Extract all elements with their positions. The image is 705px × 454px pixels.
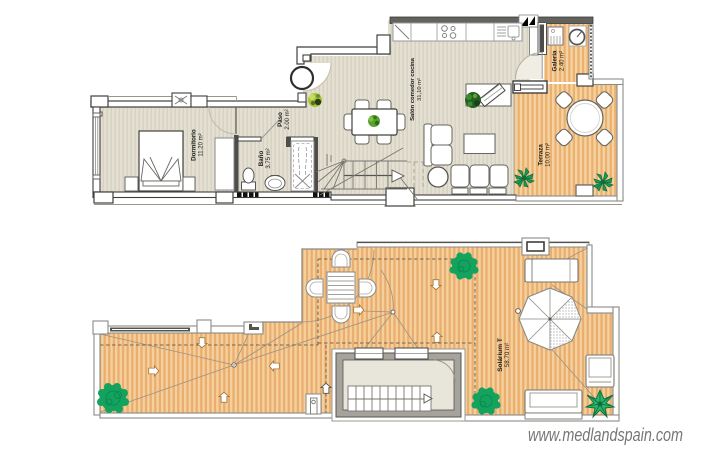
svg-text:Dormitorio: Dormitorio <box>191 129 198 161</box>
svg-text:10.00 m²: 10.00 m² <box>546 143 552 167</box>
svg-text:Baño: Baño <box>258 151 265 167</box>
svg-text:11.20 m²: 11.20 m² <box>199 133 205 156</box>
svg-text:www.medlandspain.com: www.medlandspain.com <box>528 424 683 445</box>
svg-text:2.00 m²: 2.00 m² <box>285 109 291 129</box>
svg-text:Solárium T: Solárium T <box>497 338 504 372</box>
svg-text:3.75 m²: 3.75 m² <box>266 148 272 168</box>
svg-text:Paso: Paso <box>277 112 284 127</box>
svg-text:2.40 m²: 2.40 m² <box>560 51 566 71</box>
svg-text:Salón comedor cocina: Salón comedor cocina <box>410 57 416 121</box>
svg-text:Galería: Galería <box>552 50 559 72</box>
svg-text:Terraza: Terraza <box>538 144 545 166</box>
svg-text:58.70 m²: 58.70 m² <box>504 343 511 367</box>
svg-text:31,10 m²: 31,10 m² <box>417 78 423 101</box>
